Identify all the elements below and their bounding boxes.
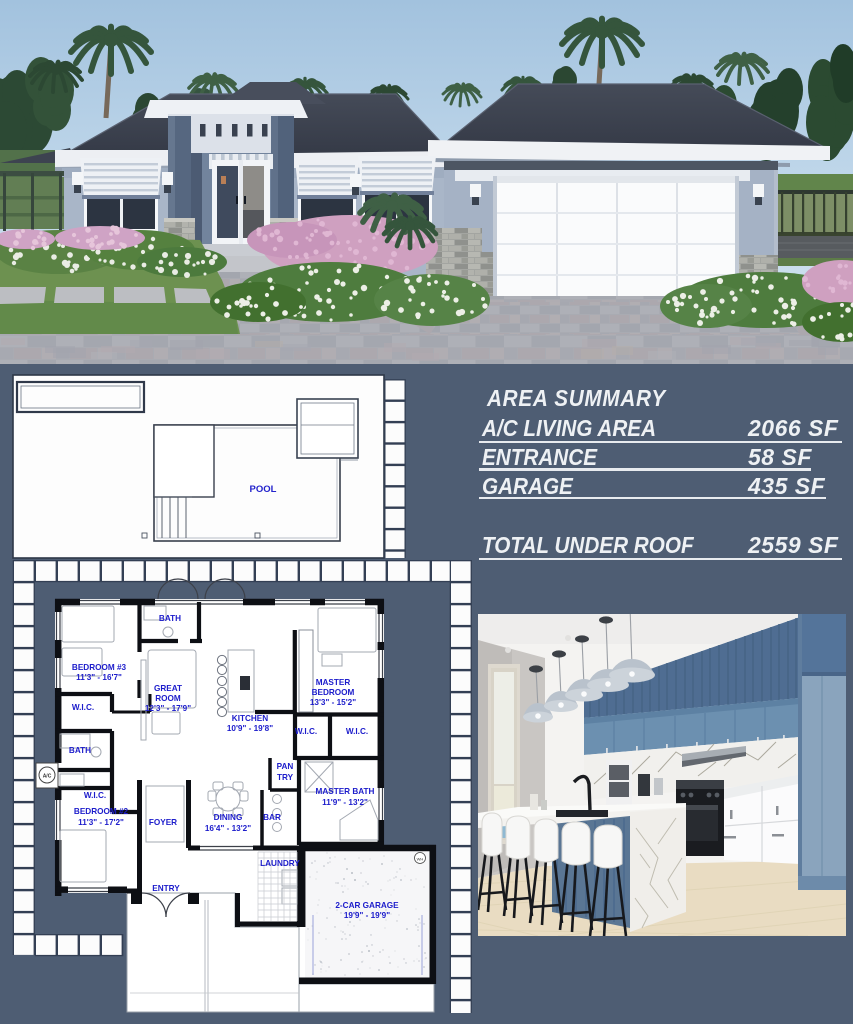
svg-text:MASTER BATH: MASTER BATH <box>316 787 375 796</box>
svg-text:11'9" - 13'2": 11'9" - 13'2" <box>322 798 368 807</box>
svg-text:BAR: BAR <box>263 813 281 822</box>
svg-text:BEDROOM: BEDROOM <box>312 688 355 697</box>
svg-text:BATH: BATH <box>69 746 91 755</box>
svg-text:10'9" - 19'8": 10'9" - 19'8" <box>227 724 273 733</box>
svg-text:WH: WH <box>417 857 424 862</box>
svg-text:BATH: BATH <box>159 614 181 623</box>
svg-text:16'4" - 13'2": 16'4" - 13'2" <box>205 824 251 833</box>
svg-text:KITCHEN: KITCHEN <box>232 714 268 723</box>
svg-text:DINING: DINING <box>214 813 243 822</box>
svg-text:BEDROOM #3: BEDROOM #3 <box>72 663 127 672</box>
svg-text:11'3" - 17'2": 11'3" - 17'2" <box>78 818 124 827</box>
svg-text:13'3" - 15'2": 13'3" - 15'2" <box>310 698 356 707</box>
svg-text:W.I.C.: W.I.C. <box>72 703 94 712</box>
svg-text:GREAT: GREAT <box>154 684 182 693</box>
svg-text:PAN: PAN <box>277 762 294 771</box>
svg-text:12'3" - 17'9": 12'3" - 17'9" <box>145 704 191 713</box>
svg-text:W.I.C.: W.I.C. <box>346 727 368 736</box>
svg-text:POOL: POOL <box>250 484 277 495</box>
svg-text:LAUNDRY: LAUNDRY <box>260 859 300 868</box>
svg-text:W.I.C.: W.I.C. <box>84 791 106 800</box>
svg-text:W.I.C.: W.I.C. <box>295 727 317 736</box>
svg-text:ENTRY: ENTRY <box>152 884 180 893</box>
svg-text:A/C: A/C <box>43 774 52 780</box>
svg-text:TRY: TRY <box>277 773 294 782</box>
svg-text:11'3" - 16'7": 11'3" - 16'7" <box>76 673 122 682</box>
svg-text:19'9" - 19'9": 19'9" - 19'9" <box>344 911 390 920</box>
svg-text:FOYER: FOYER <box>149 818 177 827</box>
svg-text:2-CAR GARAGE: 2-CAR GARAGE <box>335 901 399 910</box>
svg-text:MASTER: MASTER <box>316 678 351 687</box>
svg-text:BEDROOM #2: BEDROOM #2 <box>74 807 129 816</box>
svg-text:ROOM: ROOM <box>155 694 181 703</box>
